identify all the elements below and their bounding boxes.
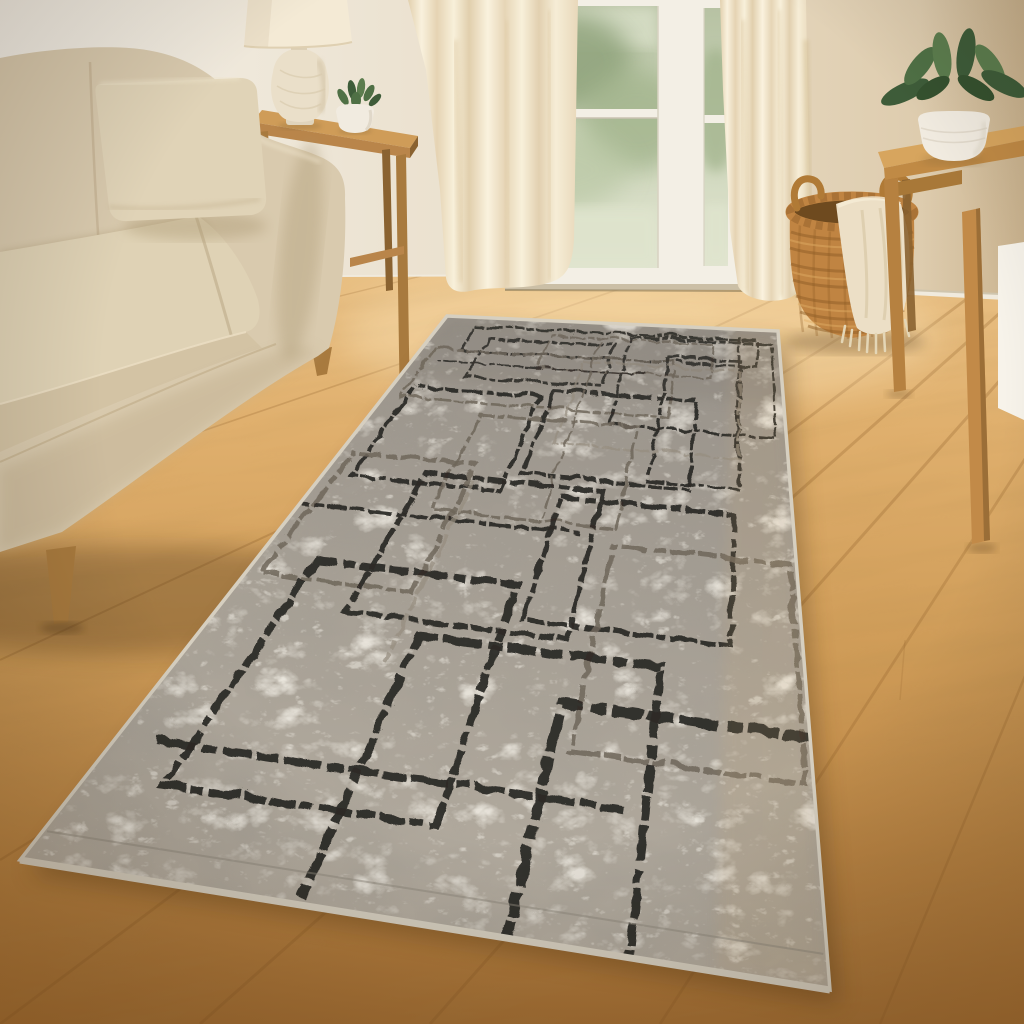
scene-svg: Grey and black geometric runner rug in a… [0, 0, 1024, 1024]
living-room-photo: Grey and black geometric runner rug in a… [0, 0, 1024, 1024]
vignette-overlay [0, 0, 1024, 1024]
